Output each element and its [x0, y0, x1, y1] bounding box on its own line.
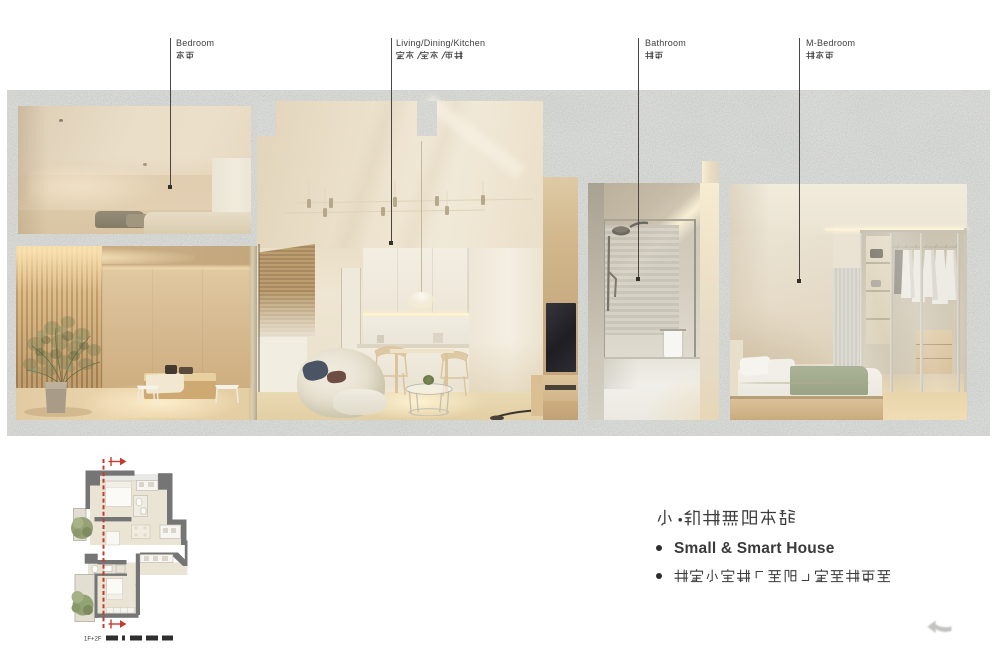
svg-text:1F+2F: 1F+2F	[84, 637, 102, 643]
